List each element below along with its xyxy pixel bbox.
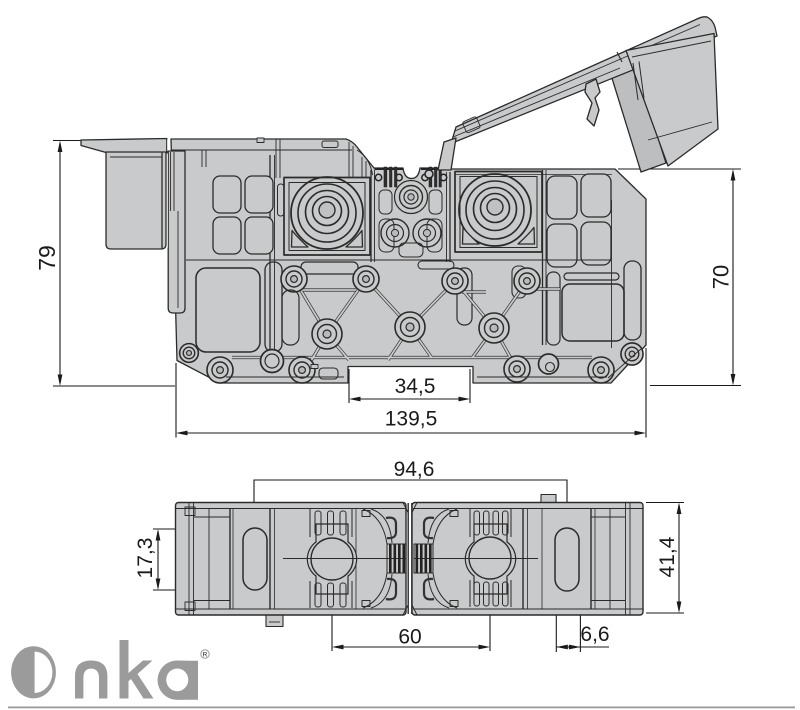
svg-text:R: R xyxy=(203,652,208,659)
svg-text:41,4: 41,4 xyxy=(656,536,679,577)
svg-text:60: 60 xyxy=(398,626,421,649)
svg-text:79: 79 xyxy=(34,245,60,271)
svg-text:94,6: 94,6 xyxy=(394,458,435,481)
svg-text:70: 70 xyxy=(709,265,734,289)
svg-text:139,5: 139,5 xyxy=(385,408,438,431)
svg-text:6,6: 6,6 xyxy=(580,623,609,646)
svg-text:34,5: 34,5 xyxy=(395,375,436,398)
svg-text:17,3: 17,3 xyxy=(134,538,157,579)
